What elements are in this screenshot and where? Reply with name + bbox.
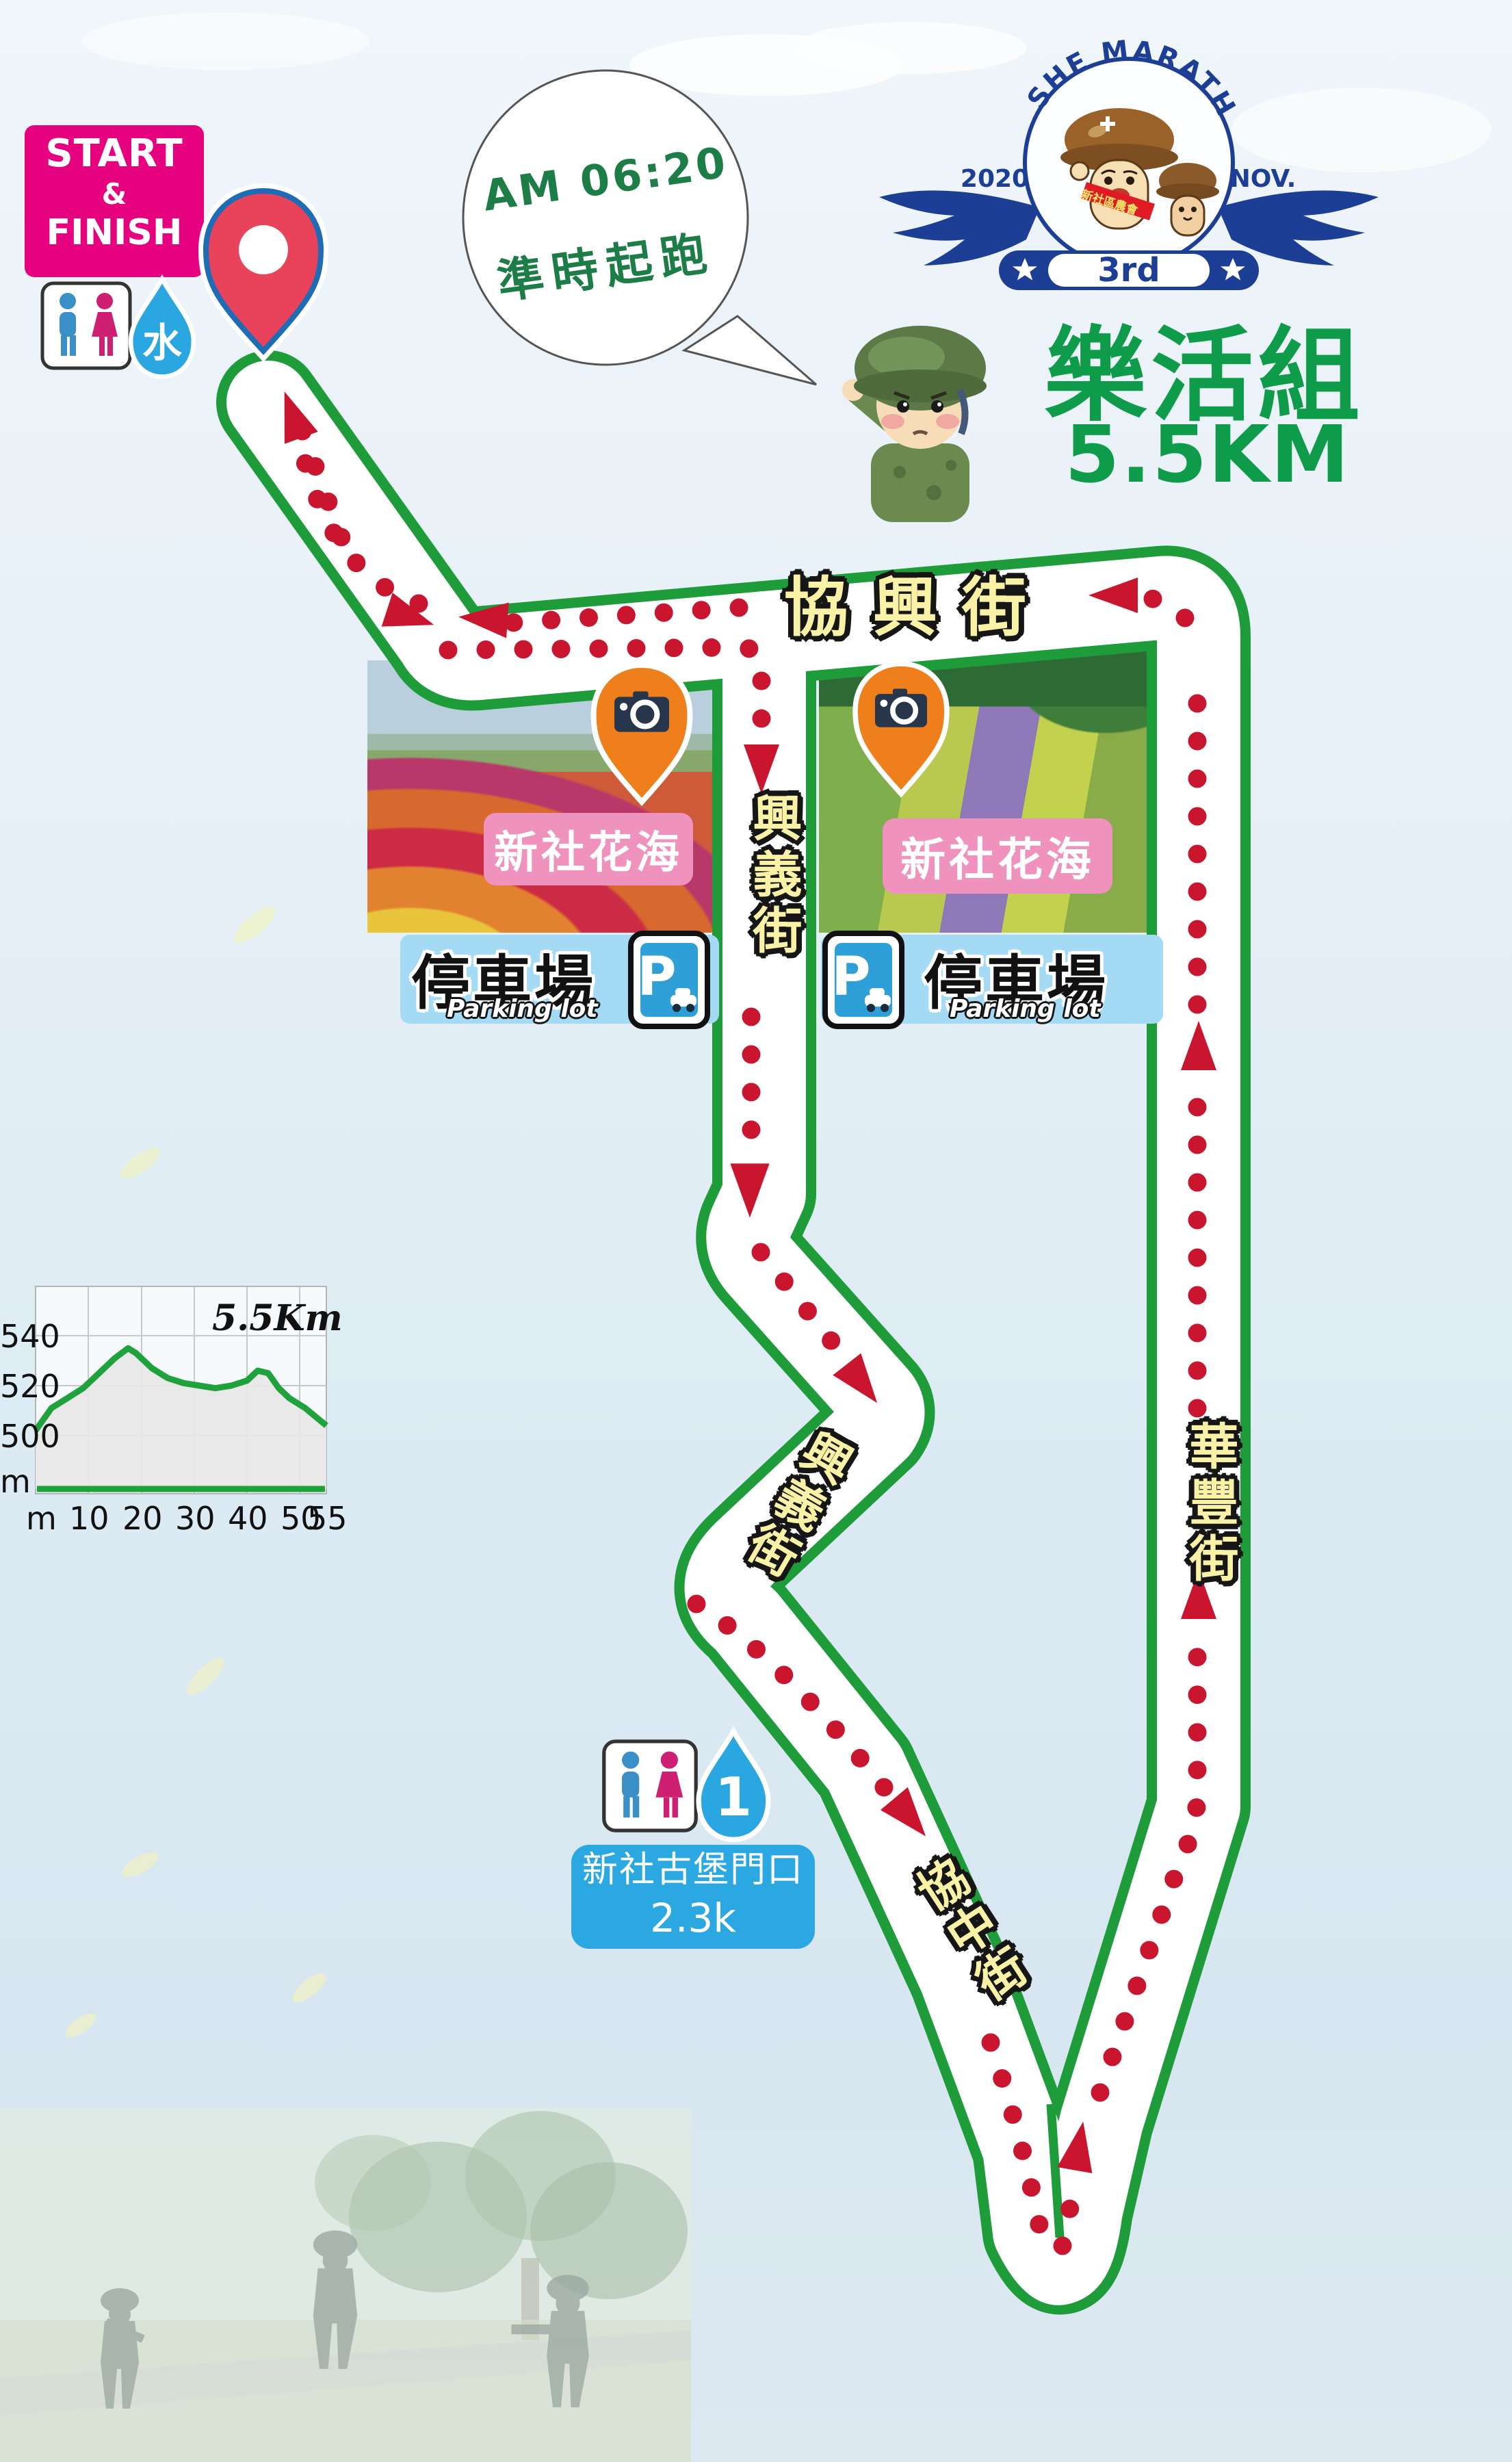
parking-band-right: 停車場 Parking lot [821,935,1163,1024]
photo-spot-text-left: 新社花海 [494,818,683,881]
chart-xtick-55: 55 [307,1500,346,1537]
water-station-label: 新社古堡門口 2.3k [571,1845,815,1949]
parking-band-left: 停車場 Parking lot [400,935,719,1024]
route-roads [268,402,1199,2263]
chart-title: 5.5Km [212,1297,328,1339]
chart-xtick-m: m [26,1500,53,1537]
photo-spot-text-right: 新社花海 [900,823,1095,889]
finish-label: FINISH [25,211,204,254]
chart-xtick-30: 30 [175,1500,213,1537]
chart-ytick-540: 540 [0,1318,30,1355]
parking-subtitle-left: Parking lot [447,995,598,1023]
marathon-course-poster: { "start_finish": {"line1": "START", "li… [0,0,1512,2462]
chart-ytick-500: 500 [0,1418,30,1455]
water-station-distance: 2.3k [571,1895,815,1941]
ampersand-label: & [25,177,204,211]
street-xiexing: 協興街 [784,556,1051,649]
chart-xtick-40: 40 [228,1500,266,1537]
cloud-shapes [82,12,1491,172]
chart-xtick-10: 10 [69,1500,107,1537]
photo-spot-label-right: 新社花海 [883,818,1112,894]
start-finish-sign: START & FINISH [25,125,204,277]
race-distance: 5.5KM [1047,409,1368,501]
chart-ytick-m: m [0,1463,30,1500]
chart-xtick-20: 20 [122,1500,161,1537]
street-huafeng: 華豐街 [1174,1421,1246,1598]
photo-spot-label-left: 新社花海 [484,813,693,885]
water-station-name: 新社古堡門口 [571,1845,815,1895]
start-label: START [25,131,204,177]
chart-ytick-520: 520 [0,1368,30,1405]
street-xingyi-north: 興義街 [738,792,809,977]
soldiers-photo-faded [0,2108,691,2462]
parking-subtitle-right: Parking lot [950,995,1101,1023]
